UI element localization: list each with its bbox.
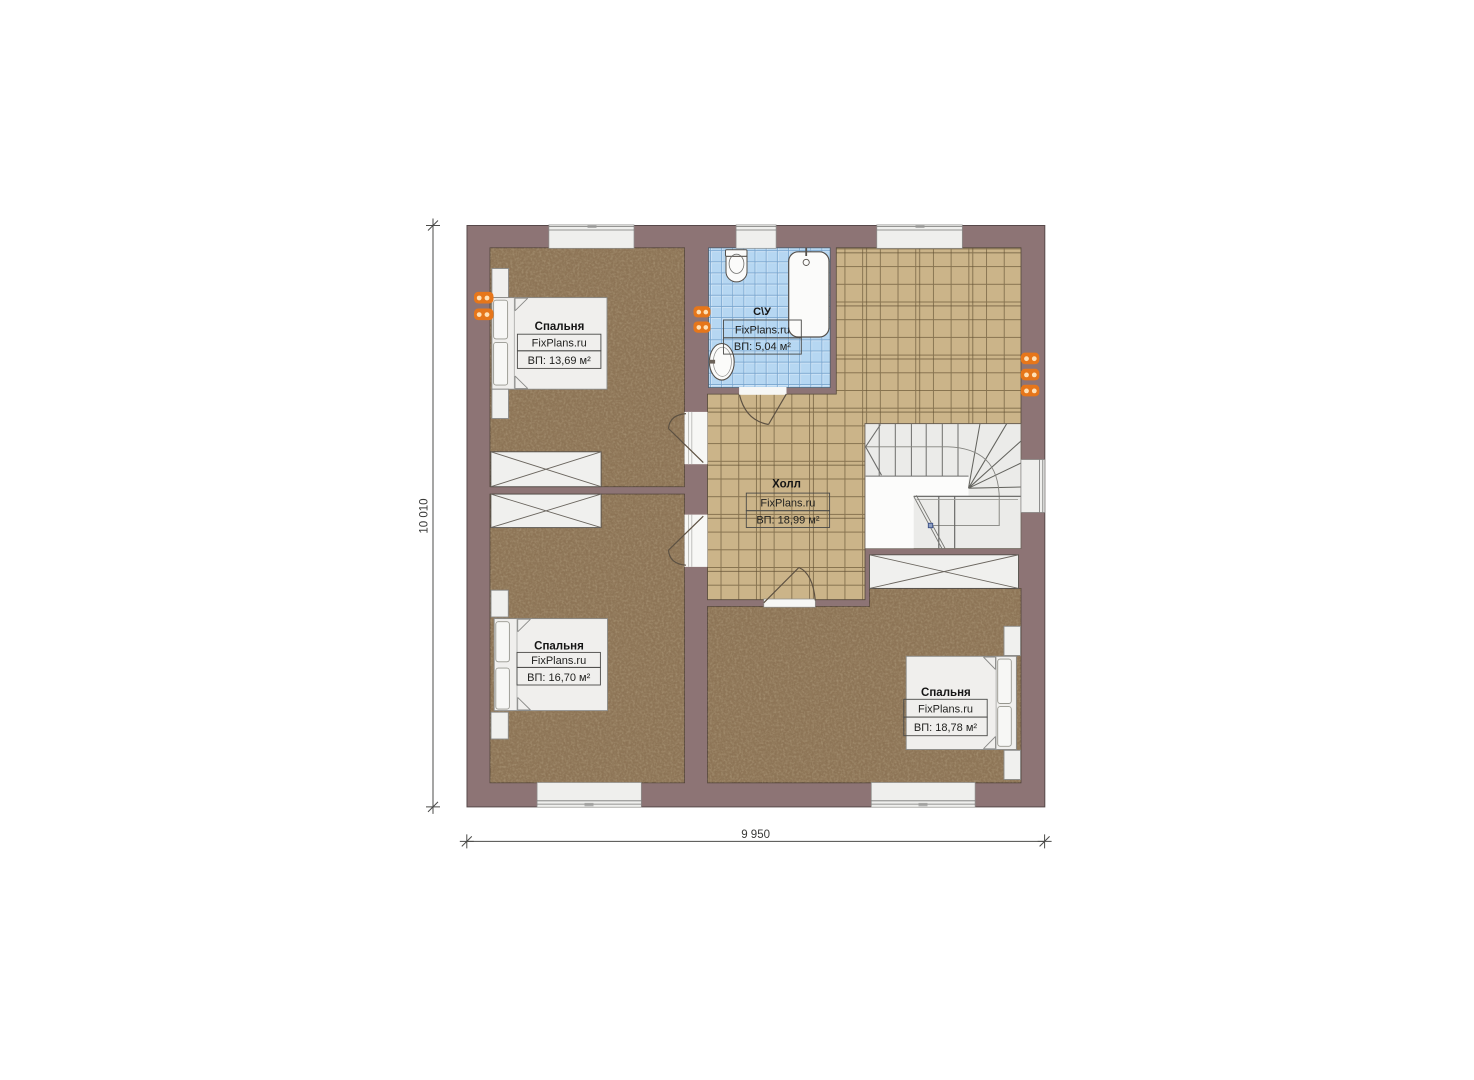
svg-text:Спальня: Спальня — [534, 641, 584, 653]
svg-text:ВП: 18,78 м²: ВП: 18,78 м² — [914, 722, 978, 734]
svg-text:FixPlans.ru: FixPlans.ru — [735, 324, 790, 336]
svg-text:ВП: 5,04 м²: ВП: 5,04 м² — [734, 341, 791, 353]
svg-text:10 010: 10 010 — [419, 498, 431, 533]
svg-text:FixPlans.ru: FixPlans.ru — [918, 704, 973, 716]
svg-text:ВП: 16,70 м²: ВП: 16,70 м² — [527, 672, 591, 684]
svg-text:FixPlans.ru: FixPlans.ru — [531, 655, 586, 667]
svg-text:ВП: 13,69 м²: ВП: 13,69 м² — [528, 355, 592, 367]
svg-text:ВП: 18,99 м²: ВП: 18,99 м² — [756, 515, 820, 527]
svg-text:FixPlans.ru: FixPlans.ru — [760, 497, 815, 509]
svg-text:Холл: Холл — [772, 478, 801, 490]
svg-text:С\У: С\У — [753, 306, 771, 318]
svg-text:Спальня: Спальня — [921, 687, 971, 699]
svg-text:FixPlans.ru: FixPlans.ru — [532, 338, 587, 350]
svg-text:9 950: 9 950 — [741, 829, 770, 841]
svg-text:Спальня: Спальня — [535, 321, 585, 333]
